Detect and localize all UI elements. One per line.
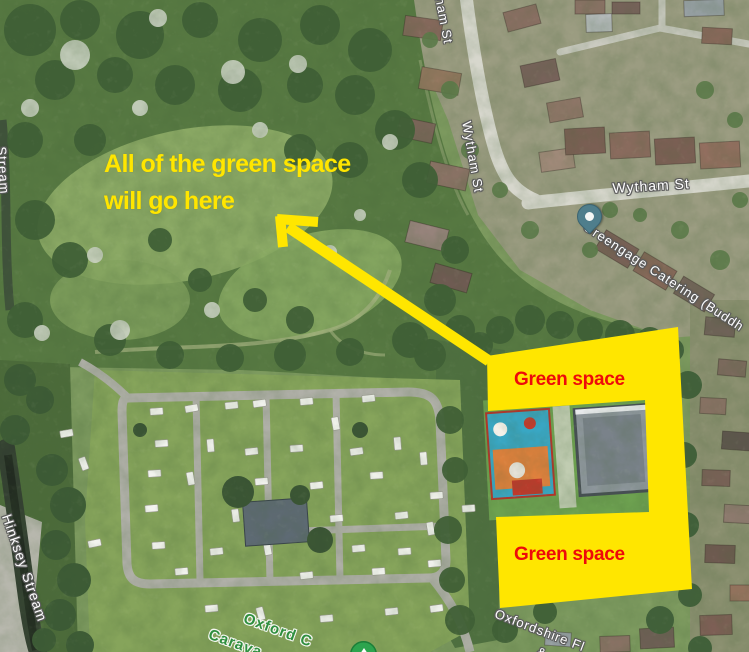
green-space-label-bottom: Green space [514, 544, 625, 566]
green-space-label-top: Green space [514, 369, 625, 391]
headline-line1: All of the green space [104, 146, 351, 183]
headline-line2: will go here [104, 183, 351, 220]
annotation-headline: All of the green space will go here [104, 146, 351, 220]
satellite-imagery [0, 0, 749, 652]
satellite-map-canvas[interactable]: All of the green space will go here Gree… [0, 0, 749, 652]
